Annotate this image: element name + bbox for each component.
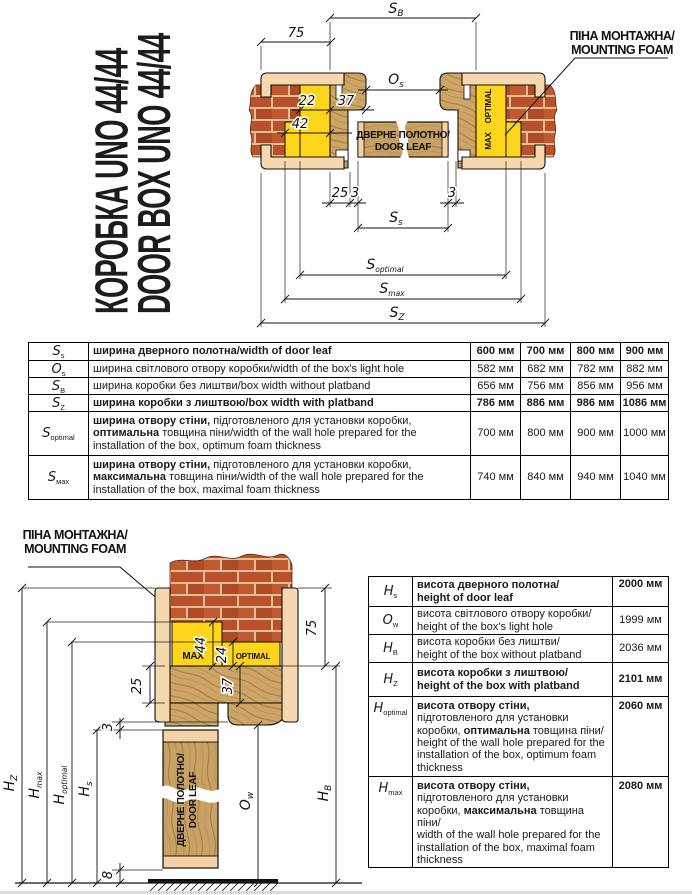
table-row: SZ ширина коробки з лиштвою/box width wi…: [29, 395, 669, 412]
symbol-cell: Ow: [369, 607, 413, 635]
door-leaf-label-uk: ДВЕРНЕ ПОЛОТНО/: [356, 130, 450, 141]
extension-lines: [261, 22, 545, 327]
head-jamb-lining: [165, 703, 218, 726]
dimension-lines: [257, 14, 549, 327]
dim-label-os: Os: [388, 72, 404, 90]
horizontal-section-diagram: OPTIMAL MAX ДВЕРНЕ ПОЛОТНО/ DOOR LEAF: [0, 0, 692, 340]
description-cell: висота отвору стіни, підготовленого для …: [413, 777, 613, 868]
dim-platband-width: 75: [305, 620, 320, 637]
dim-foam-max: 42: [292, 117, 309, 132]
value-cell: 700 мм: [521, 343, 571, 361]
symbol-cell: Hmax: [369, 777, 413, 868]
value-cell: 800 мм: [571, 343, 621, 361]
value-cell: 740 мм: [471, 456, 521, 500]
value-cell: 1999 мм: [613, 607, 669, 635]
value-cell: 900 мм: [621, 343, 669, 361]
value-cell: 840 мм: [521, 456, 571, 500]
dim-label-hb: HB: [316, 785, 334, 802]
symbol-cell: Sмах: [29, 456, 89, 500]
symbol-cell: Hoptimal: [369, 697, 413, 777]
description-cell: висота коробки з лиштвою/height of the b…: [413, 663, 613, 697]
description-cell: ширина світлового отвору коробки/width o…: [89, 361, 471, 378]
value-cell: 786 мм: [471, 395, 521, 412]
symbol-cell: Hs: [369, 577, 413, 607]
door-leaf-label-en: DOOR LEAF: [188, 772, 199, 828]
door-leaf-section: ДВЕРНЕ ПОЛОТНО/ DOOR LEAF: [161, 730, 220, 868]
page-edge: [0, 891, 692, 894]
foam-callout-en: MOUNTING FOAM: [571, 43, 673, 57]
door-leaf-section: ДВЕРНЕ ПОЛОТНО/ DOOR LEAF: [356, 120, 450, 159]
value-cell: 1040 мм: [621, 456, 669, 500]
vertical-section-diagram: ПІНА МОНТАЖНА/ MOUNTING FOAM MAX OPTIMAL: [0, 523, 368, 895]
dim-gap-right: 3: [448, 186, 456, 201]
platband-groove-right: [464, 85, 470, 99]
dim-top-gap: 3: [101, 723, 116, 731]
callout-leader-line: [28, 567, 160, 601]
height-spec-table: Hs висота дверного полотна/height of doo…: [368, 576, 669, 868]
foam-callout-en: MOUNTING FOAM: [24, 542, 126, 556]
value-cell: 1086 мм: [621, 395, 669, 412]
dim-label-sb: SB: [388, 1, 403, 19]
dim-bottom-gap: 8: [101, 871, 116, 879]
width-spec-table: Ss ширина дверного полотна/width of door…: [28, 342, 669, 500]
symbol-cell: Ss: [29, 343, 89, 361]
table-row: HB висота коробки без лиштви/height of t…: [369, 635, 669, 663]
foam-callout-uk: ПІНА МОНТАЖНА/: [23, 528, 129, 542]
dim-gap-left: 3: [351, 186, 359, 201]
symbol-cell: Os: [29, 361, 89, 378]
symbol-cell: SB: [29, 378, 89, 395]
dim-stop-offset: 25: [332, 186, 349, 201]
value-cell: 882 мм: [621, 361, 669, 378]
foam-callout-uk: ПІНА МОНТАЖНА/: [570, 29, 676, 43]
mounting-foam-optimal: OPTIMAL: [222, 642, 280, 666]
value-cell: 2000 мм: [613, 577, 669, 607]
foam-band-max-label: MAX: [484, 132, 493, 150]
value-cell: 2036 мм: [613, 635, 669, 663]
table-row: Sмах ширина отвору стіни, підготовленого…: [29, 456, 669, 500]
dim-label-smax: Smax: [379, 281, 405, 298]
dim-foam-max: 44: [194, 637, 209, 654]
door-leaf-label-en: DOOR LEAF: [375, 142, 431, 153]
symbol-cell: SZ: [29, 395, 89, 412]
value-cell: 682 мм: [521, 361, 571, 378]
value-cell: 856 мм: [571, 378, 621, 395]
foam-band-optimal-label: OPTIMAL: [484, 88, 493, 123]
value-cell: 800 мм: [521, 412, 571, 456]
value-cell: 656 мм: [471, 378, 521, 395]
table-row: HZ висота коробки з лиштвою/height of th…: [369, 663, 669, 697]
table-row: Soptimal ширина отвору стіни, підготовле…: [29, 412, 669, 456]
description-cell: ширина отвору стіни, підготовленого для …: [89, 456, 471, 500]
dim-label-ss: Ss: [389, 210, 403, 228]
table-row: Hmax висота отвору стіни, підготовленого…: [369, 777, 669, 868]
dim-label-soptimal: Soptimal: [366, 257, 404, 274]
value-cell: 956 мм: [621, 378, 669, 395]
description-cell: ширина коробки з лиштвою/box width with …: [89, 395, 471, 412]
value-cell: 1000 мм: [621, 412, 669, 456]
door-leaf-label-uk: ДВЕРНЕ ПОЛОТНО/: [176, 753, 187, 847]
foam-band-optimal-label: OPTIMAL: [236, 652, 271, 661]
dim-foam-optimal: 24: [215, 647, 230, 664]
symbol-cell: HB: [369, 635, 413, 663]
value-cell: 600 мм: [471, 343, 521, 361]
value-cell: 2080 мм: [613, 777, 669, 868]
description-cell: висота отвору стіни, підготовленого для …: [413, 697, 613, 777]
symbol-cell: HZ: [369, 663, 413, 697]
dim-label-hmax: Hmax: [27, 771, 44, 798]
table-row: Hs висота дверного полотна/height of doo…: [369, 577, 669, 607]
symbol-cell: Soptimal: [29, 412, 89, 456]
description-cell: ширина дверного полотна/width of door le…: [89, 343, 471, 361]
dim-box-depth: 37: [221, 677, 236, 694]
dim-foam-optimal: 22: [299, 94, 316, 109]
value-cell: 782 мм: [571, 361, 621, 378]
value-cell: 2060 мм: [613, 697, 669, 777]
description-cell: висота дверного полотна/height of door l…: [413, 577, 613, 607]
table-row: Ow висота світлового отвору коробки/heig…: [369, 607, 669, 635]
dim-box-depth: 37: [338, 94, 355, 109]
description-cell: ширина коробки без лиштви/box width with…: [89, 378, 471, 395]
value-cell: 2101 мм: [613, 663, 669, 697]
table-row: Hoptimal висота отвору стіни, підготовле…: [369, 697, 669, 777]
dim-platband-width: 75: [288, 26, 305, 41]
dim-label-ow: Ow: [238, 791, 256, 810]
platband-left-board: [155, 588, 170, 722]
value-cell: 582 мм: [471, 361, 521, 378]
description-cell: висота коробки без лиштви/height of the …: [413, 635, 613, 663]
dim-stop-offset: 25: [130, 678, 145, 695]
value-cell: 756 мм: [521, 378, 571, 395]
value-cell: 940 мм: [571, 456, 621, 500]
platband-right-board: [282, 588, 298, 722]
value-cell: 886 мм: [521, 395, 571, 412]
value-cell: 986 мм: [571, 395, 621, 412]
table-row: SB ширина коробки без лиштви/box width w…: [29, 378, 669, 395]
value-cell: 900 мм: [571, 412, 621, 456]
dim-label-hoptimal: Hoptimal: [52, 765, 69, 805]
dim-label-hz: HZ: [2, 774, 20, 792]
datasheet-page: КОРОБКА UNO 44/44 DOOR BOX UNO 44/44: [0, 0, 692, 895]
dim-label-sz: SZ: [389, 305, 405, 323]
table-row: Os ширина світлового отвору коробки/widt…: [29, 361, 669, 378]
foam-callout-bottom: ПІНА МОНТАЖНА/ MOUNTING FOAM: [23, 528, 160, 601]
description-cell: висота світлового отвору коробки/height …: [413, 607, 613, 635]
dim-label-hs: Hs: [77, 781, 95, 797]
floor-line: [15, 879, 362, 891]
description-cell: ширина отвору стіни, підготовленого для …: [89, 412, 471, 456]
table-row: Ss ширина дверного полотна/width of door…: [29, 343, 669, 361]
value-cell: 700 мм: [471, 412, 521, 456]
